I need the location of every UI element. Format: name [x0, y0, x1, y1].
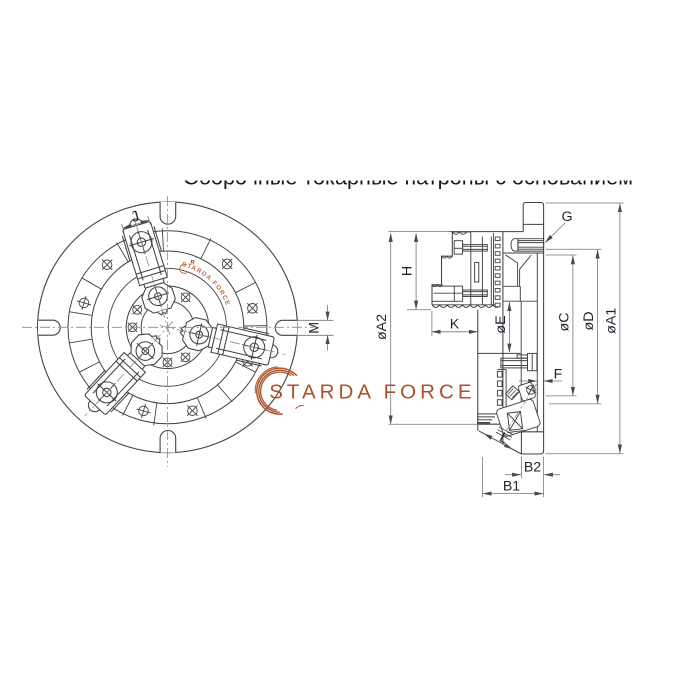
svg-text:øE: øE: [493, 315, 509, 333]
svg-text:K: K: [450, 317, 460, 333]
svg-text:M: M: [307, 322, 323, 334]
svg-text:F: F: [554, 367, 563, 383]
svg-text:øC: øC: [556, 313, 572, 332]
svg-text:H: H: [400, 266, 416, 276]
svg-text:G: G: [561, 209, 572, 225]
svg-text:øA1: øA1: [603, 308, 619, 334]
svg-text:øD: øD: [581, 312, 597, 331]
svg-text:B2: B2: [524, 460, 541, 476]
svg-text:øA2: øA2: [374, 314, 390, 340]
svg-text:B1: B1: [503, 478, 520, 494]
